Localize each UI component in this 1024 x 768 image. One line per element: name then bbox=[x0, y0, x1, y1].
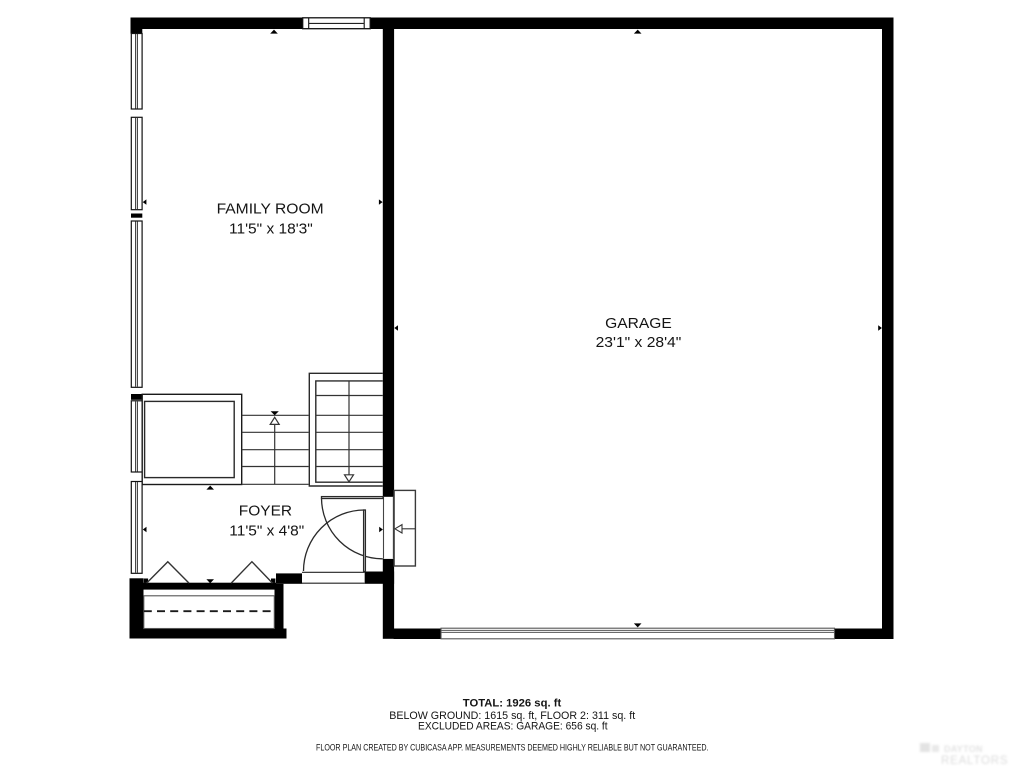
svg-text:REALTORS: REALTORS bbox=[941, 755, 1008, 767]
svg-text:FLOOR PLAN CREATED BY CUBICASA: FLOOR PLAN CREATED BY CUBICASA APP. MEAS… bbox=[316, 742, 709, 753]
svg-text:TOTAL: 1926 sq. ft: TOTAL: 1926 sq. ft bbox=[463, 698, 562, 710]
svg-text:FOYER: FOYER bbox=[239, 503, 292, 520]
svg-text:23'1" x 28'4": 23'1" x 28'4" bbox=[596, 334, 682, 351]
svg-text:11'5" x 18'3": 11'5" x 18'3" bbox=[229, 220, 313, 237]
svg-text:DAYTON: DAYTON bbox=[944, 744, 983, 754]
svg-text:GARAGE: GARAGE bbox=[605, 315, 672, 332]
svg-text:FAMILY ROOM: FAMILY ROOM bbox=[217, 200, 324, 217]
svg-text:11'5" x 4'8": 11'5" x 4'8" bbox=[229, 522, 304, 539]
svg-text:EXCLUDED AREAS: GARAGE: 656 sq: EXCLUDED AREAS: GARAGE: 656 sq. ft bbox=[418, 720, 608, 732]
